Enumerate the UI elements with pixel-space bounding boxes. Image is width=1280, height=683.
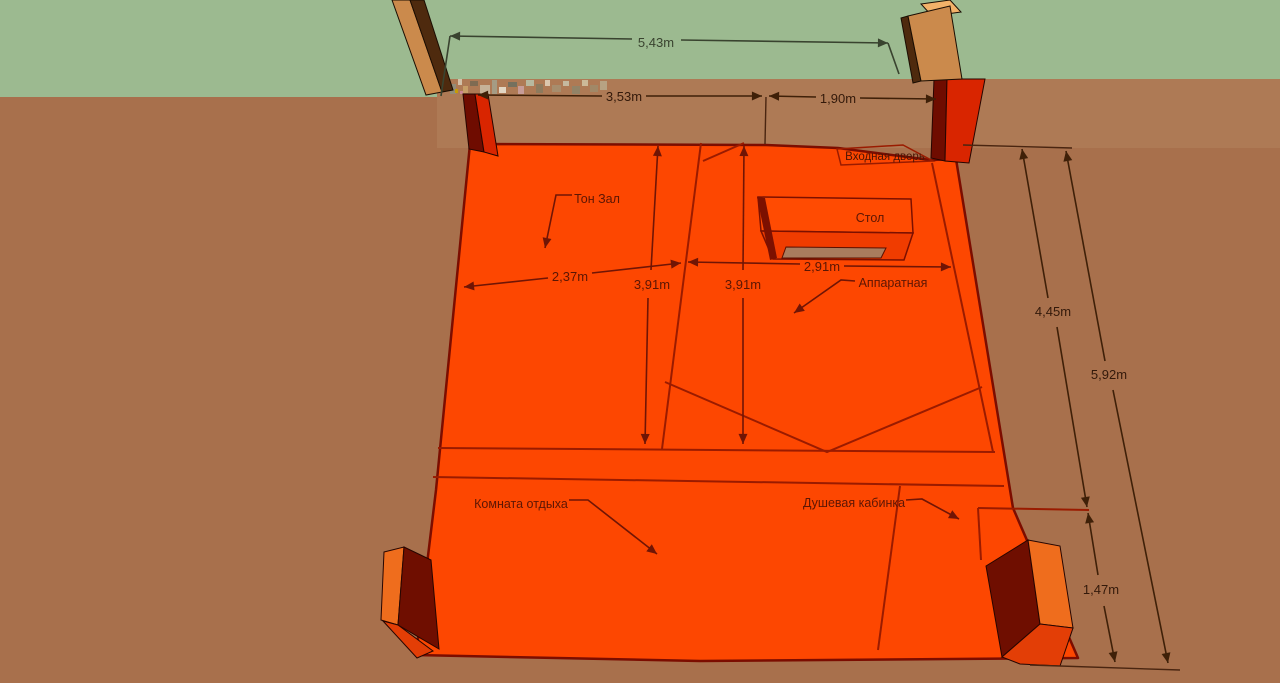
label-apparatnaya-text: Аппаратная: [859, 276, 928, 290]
ground-far-band: [437, 79, 1280, 148]
door-edge-extension: [765, 97, 766, 144]
label-dushevaya-kabinka-text: Душевая кабинка: [803, 496, 905, 510]
dimension-ton-zal-width-text: 2,37m: [552, 269, 588, 284]
sketchup-viewport[interactable]: Входная дверь Стол: [0, 0, 1280, 683]
dimension-right-lower-text: 1,47m: [1083, 582, 1119, 597]
dimension-hall-depth-text: 3,91m: [725, 277, 761, 292]
table[interactable]: Стол: [757, 197, 913, 260]
dimension-right-total-text: 5,92m: [1091, 367, 1127, 382]
dimension-ton-zal-depth-text: 3,91m: [634, 277, 670, 292]
label-ton-zal-text: Тон Зал: [574, 192, 620, 206]
label-komnata-otdyha-text: Комната отдыха: [474, 497, 568, 511]
table-top-face[interactable]: [758, 197, 913, 233]
post-right-base-dark: [931, 79, 947, 161]
entrance-door-text: Входная дверь: [845, 151, 925, 163]
table-label: Стол: [856, 211, 885, 225]
dimension-opening-width-text: 5,43m: [638, 35, 674, 50]
dimension-door-width-text: 1,90m: [820, 91, 856, 106]
dimension-right-upper-text: 4,45m: [1035, 304, 1071, 319]
dimension-wall-segment-text: 3,53m: [606, 89, 642, 104]
table-kneehole: [782, 247, 886, 258]
dimension-apparatnaya-width-text: 2,91m: [804, 259, 840, 274]
